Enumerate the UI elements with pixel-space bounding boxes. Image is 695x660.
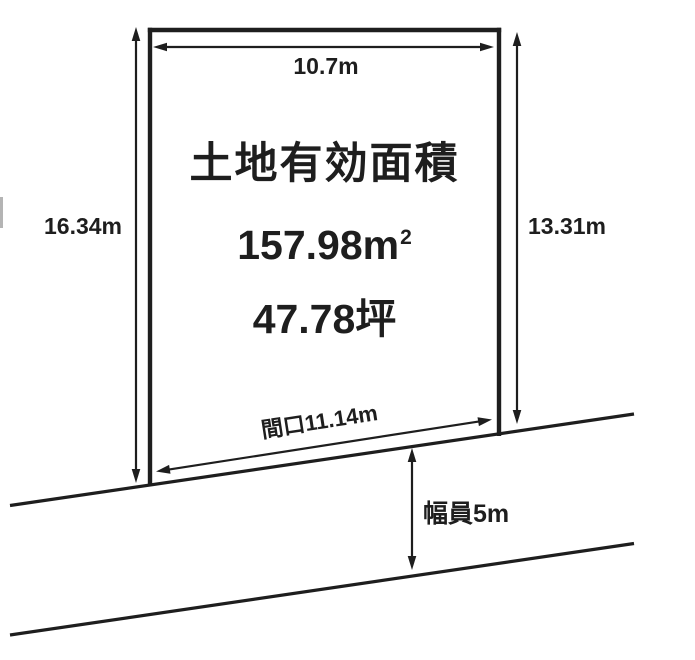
arrowhead-down-icon	[513, 410, 522, 424]
right-depth-arrow	[513, 32, 522, 424]
parcel-heading: 土地有効面積	[150, 143, 499, 186]
parcel-area-sqm-superscript: 2	[400, 227, 412, 248]
arrowhead-down-icon	[408, 556, 417, 570]
right-depth-label: 13.31m	[528, 215, 606, 238]
road-lower-edge-line	[10, 544, 634, 636]
land-plot-diagram: 16.34m 13.31m 10.7m 間口11.14m 幅員5m 土地有効面積…	[0, 0, 695, 660]
arrowhead-right-icon	[478, 417, 493, 426]
road-width-arrow	[408, 448, 417, 570]
top-width-arrow	[153, 43, 494, 52]
arrowhead-up-icon	[513, 32, 522, 46]
edge-artifact	[0, 197, 3, 228]
arrowhead-up-icon	[408, 448, 417, 462]
left-depth-arrow	[132, 27, 141, 483]
arrowhead-right-icon	[480, 43, 494, 52]
arrowhead-left-icon	[153, 43, 167, 52]
parcel-area-sqm: 157.98m2	[150, 225, 499, 266]
arrowhead-down-icon	[132, 469, 141, 483]
arrowhead-left-icon	[156, 465, 171, 474]
road-width-label: 幅員5m	[423, 502, 509, 527]
top-width-label: 10.7m	[266, 55, 386, 78]
parcel-area-sqm-value: 157.98m	[237, 222, 399, 268]
left-depth-label: 16.34m	[6, 215, 122, 238]
arrowhead-up-icon	[132, 27, 141, 41]
parcel-area-tsubo: 47.78坪	[150, 299, 499, 340]
